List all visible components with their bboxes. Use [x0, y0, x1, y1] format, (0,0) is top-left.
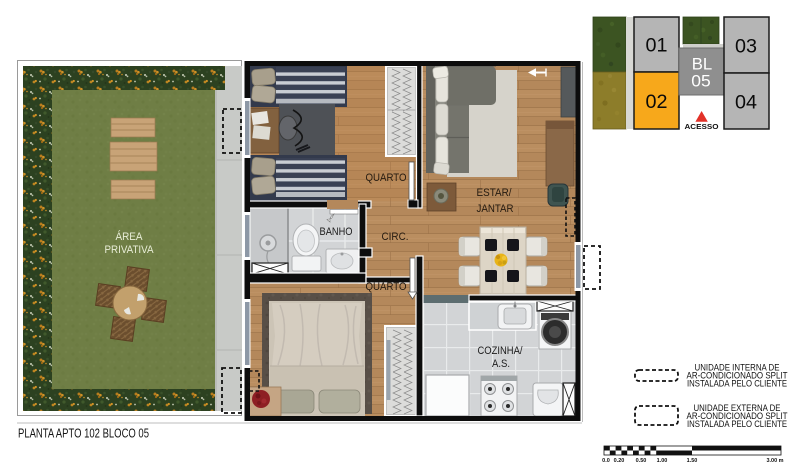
svg-text:3.00 m: 3.00 m [766, 458, 783, 464]
svg-text:BANHO: BANHO [320, 226, 353, 238]
svg-text:QUARTO: QUARTO [366, 281, 407, 293]
svg-text:PLANTA APTO 102 BLOCO 05: PLANTA APTO 102 BLOCO 05 [18, 426, 149, 441]
svg-text:02: 02 [646, 92, 668, 113]
svg-text:1.50: 1.50 [687, 458, 698, 464]
svg-text:COZINHA/: COZINHA/ [478, 345, 524, 357]
svg-text:1.00: 1.00 [657, 458, 668, 464]
svg-text:04: 04 [735, 92, 757, 113]
svg-text:05: 05 [691, 73, 711, 91]
svg-text:CIRC.: CIRC. [382, 231, 409, 243]
svg-text:INSTALADA PELO CLIENTE: INSTALADA PELO CLIENTE [687, 419, 787, 429]
svg-text:ACESSO: ACESSO [685, 122, 719, 131]
svg-text:JANTAR: JANTAR [477, 203, 514, 215]
svg-text:03: 03 [735, 36, 757, 57]
svg-text:A.S.: A.S. [492, 358, 510, 370]
svg-text:0.50: 0.50 [636, 458, 647, 464]
svg-text:0.20: 0.20 [614, 458, 625, 464]
svg-text:0.0: 0.0 [602, 458, 610, 464]
svg-text:QUARTO: QUARTO [366, 172, 407, 184]
svg-text:ÁREA: ÁREA [116, 230, 144, 243]
svg-text:INSTALADA PELO CLIENTE: INSTALADA PELO CLIENTE [687, 379, 787, 389]
svg-text:ESTAR/: ESTAR/ [477, 187, 513, 199]
svg-text:01: 01 [646, 36, 668, 57]
svg-text:BL: BL [692, 55, 713, 73]
svg-text:PRIVATIVA: PRIVATIVA [105, 244, 155, 256]
